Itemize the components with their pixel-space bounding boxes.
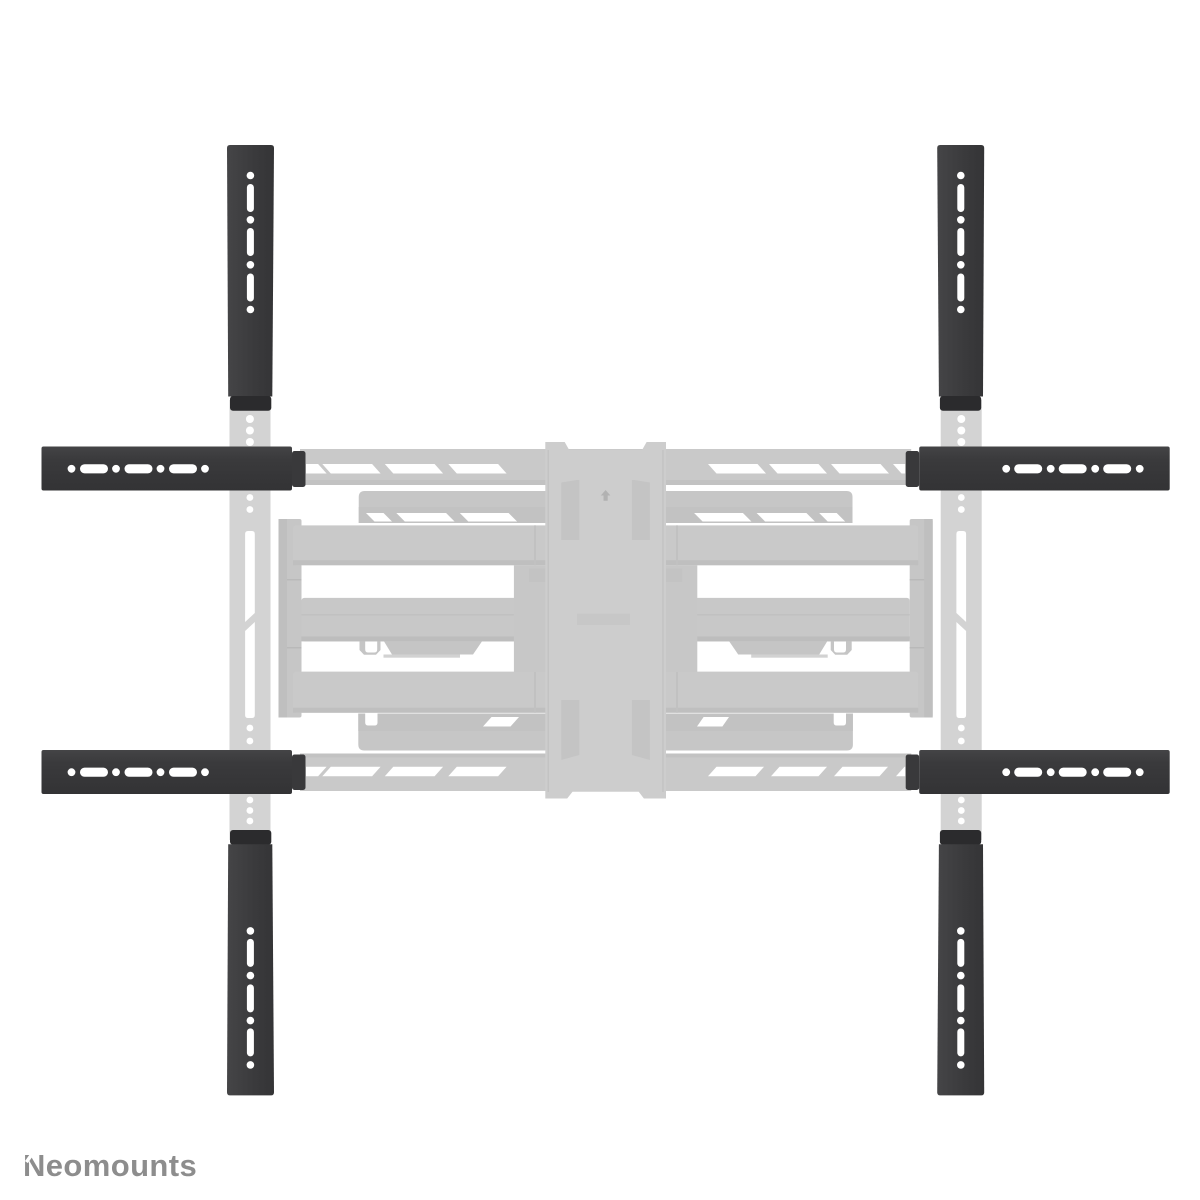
svg-text:Neomounts: Neomounts: [23, 1148, 197, 1183]
